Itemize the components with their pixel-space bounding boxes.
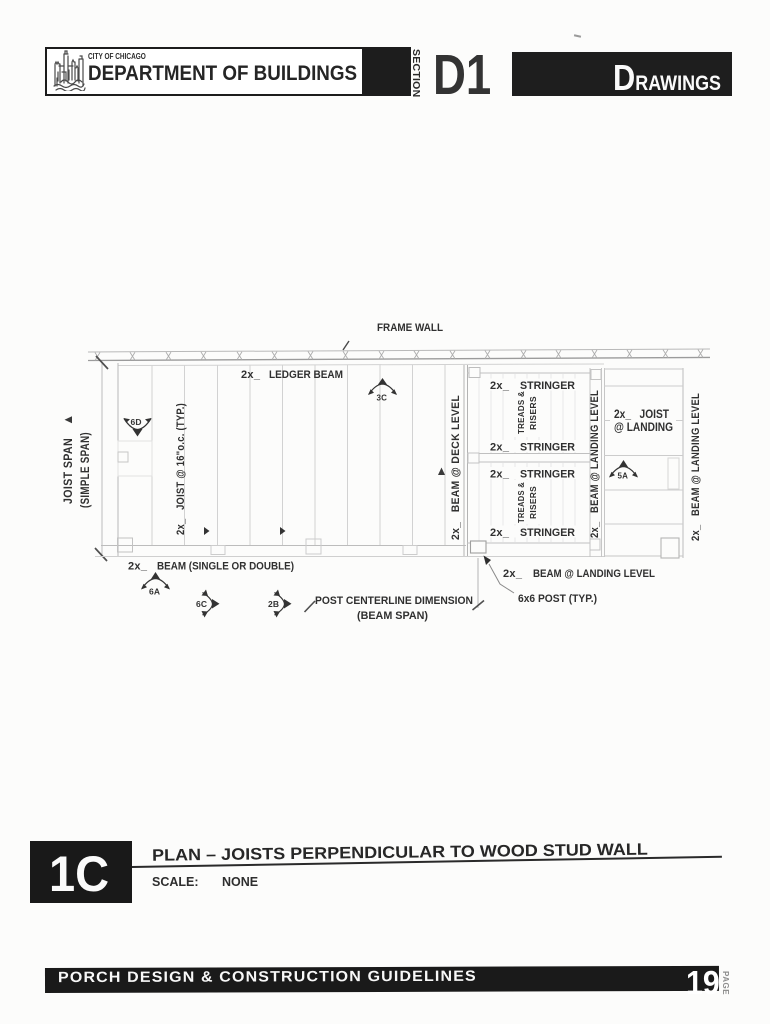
svg-text:2x_ JOIST @ 16"o.c. (TYP.): 2x_ JOIST @ 16"o.c. (TYP.) xyxy=(175,403,187,535)
svg-text:BEAM (SINGLE OR DOUBLE): BEAM (SINGLE OR DOUBLE) xyxy=(157,561,294,573)
svg-text:STRINGER: STRINGER xyxy=(520,469,575,481)
svg-text:TREADS &: TREADS & xyxy=(517,482,526,523)
svg-text:LEDGER BEAM: LEDGER BEAM xyxy=(269,369,343,381)
svg-text:POST CENTERLINE DIMENSION: POST CENTERLINE DIMENSION xyxy=(315,595,473,607)
svg-text:5A: 5A xyxy=(618,472,629,481)
svg-text:2B: 2B xyxy=(268,599,279,609)
svg-text:STRINGER: STRINGER xyxy=(520,527,575,539)
svg-text:2x_ BEAM @ LANDING LEVEL: 2x_ BEAM @ LANDING LEVEL xyxy=(589,390,601,538)
svg-text:2x_: 2x_ xyxy=(490,380,510,392)
svg-text:STRINGER: STRINGER xyxy=(520,442,575,454)
svg-text:@ LANDING: @ LANDING xyxy=(614,422,673,434)
svg-text:2x_: 2x_ xyxy=(490,442,510,454)
svg-text:2x_: 2x_ xyxy=(128,561,148,573)
svg-text:2x_ BEAM @ LANDING LEVEL: 2x_ BEAM @ LANDING LEVEL xyxy=(690,393,702,541)
svg-text:FRAME WALL: FRAME WALL xyxy=(377,322,443,334)
svg-text:TREADS &: TREADS & xyxy=(517,391,526,434)
svg-text:JOIST SPAN: JOIST SPAN xyxy=(63,438,75,504)
svg-text:6A: 6A xyxy=(149,587,160,597)
svg-text:2x_ JOIST: 2x_ JOIST xyxy=(614,409,669,421)
svg-text:2x_: 2x_ xyxy=(490,469,510,481)
svg-text:2x_: 2x_ xyxy=(241,369,261,381)
svg-text:(BEAM SPAN): (BEAM SPAN) xyxy=(357,610,428,622)
svg-text:6D: 6D xyxy=(131,417,142,427)
svg-text:(SIMPLE SPAN): (SIMPLE SPAN) xyxy=(80,432,92,508)
svg-text:6x6 POST (TYP.): 6x6 POST (TYP.) xyxy=(518,593,597,605)
svg-text:2x_: 2x_ xyxy=(503,568,523,580)
svg-text:RISERS: RISERS xyxy=(529,396,538,430)
svg-text:3C: 3C xyxy=(377,394,388,403)
svg-text:6C: 6C xyxy=(196,599,207,609)
svg-text:BEAM @ LANDING LEVEL: BEAM @ LANDING LEVEL xyxy=(533,568,655,580)
svg-text:2x_: 2x_ xyxy=(490,527,510,539)
svg-text:RISERS: RISERS xyxy=(529,486,538,519)
svg-text:2x_ BEAM @ DECK LEVEL: 2x_ BEAM @ DECK LEVEL xyxy=(450,395,462,540)
